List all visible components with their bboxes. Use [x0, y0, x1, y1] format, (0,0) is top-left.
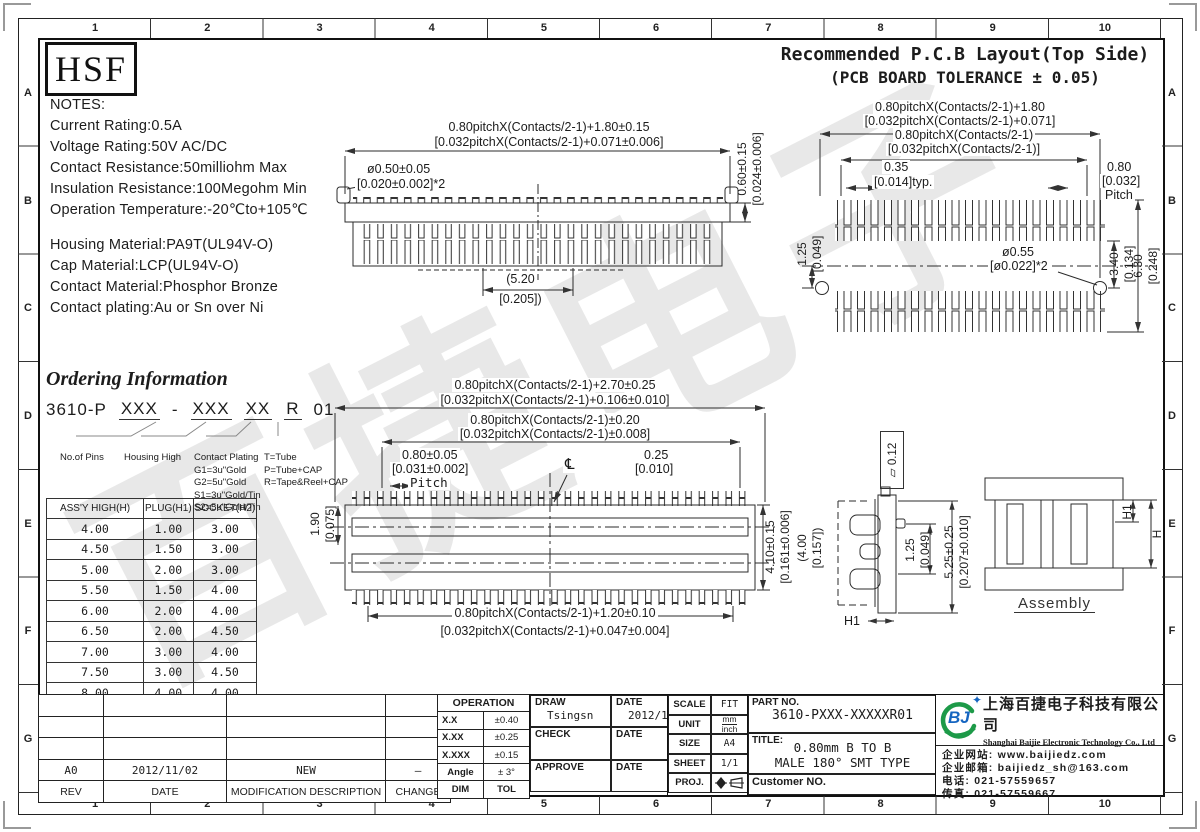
- flatness-icon: ▱: [887, 468, 899, 477]
- dim-front-width-mm: 0.80pitchX(Contacts/2-1)+1.80±0.15: [333, 120, 765, 134]
- company-name-en: Shanghai Baijie Electronic Technology Co…: [983, 737, 1161, 747]
- pcb-layout-drawing: 0.80pitchX(Contacts/2-1)+1.80 [0.032pitc…: [800, 100, 1162, 345]
- table-row: 6.502.004.50: [47, 621, 257, 642]
- dim-hole-mm: ø0.55: [1000, 245, 1036, 259]
- dim-top-pitch-in: [0.031±0.002]: [390, 462, 470, 476]
- pcb-layout-heading: Recommended P.C.B Layout(Top Side) (PCB …: [755, 44, 1175, 87]
- company-tel: 电话: 021-57559657: [942, 775, 1163, 787]
- revision-entry: A0 2012/11/02 NEW —: [39, 759, 451, 781]
- table-row: 4.501.503.00: [47, 539, 257, 560]
- assembly-dim-h: H: [1150, 519, 1164, 549]
- top-view-drawing: 0.80pitchX(Contacts/2-1)+2.70±0.25 [0.03…: [320, 378, 790, 650]
- dim-top-tail-in: [0.032pitchX(Contacts/2-1)+0.047±0.004]: [320, 624, 790, 638]
- table-row: 6.002.004.00: [47, 601, 257, 622]
- label-h1: H1: [842, 614, 862, 628]
- dim-top-pad-mm: 0.25: [642, 448, 670, 462]
- company-fax: 传真: 021-57559667: [942, 788, 1163, 800]
- dim-top-outer-in: [0.032pitchX(Contacts/2-1)+0.106±0.010]: [320, 393, 790, 407]
- dim-layout-span-mm: 0.80pitchX(Contacts/2-1): [800, 128, 1128, 142]
- company-block: BJ ✦ 上海百捷电子科技有限公司 Shanghai Baijie Electr…: [935, 694, 1164, 796]
- unit-value: mm inch: [711, 715, 748, 735]
- dim-layout-pitch-mm: 0.80: [1105, 160, 1133, 174]
- centerline-symbol: ℄: [563, 458, 577, 472]
- dim-layout-pitch-in: [0.032]: [1100, 174, 1142, 188]
- dim-layout-outer-in: [0.032pitchX(Contacts/2-1)+0.071]: [800, 114, 1120, 128]
- company-email: 企业邮箱: baijiedz_sh@163.com: [942, 762, 1163, 774]
- ordering-code: 3610-P XXX - XXX XX R 01: [46, 399, 346, 420]
- part-info-block: PART NO. 3610-PXXX-XXXXXR01 TITLE: 0.80m…: [747, 694, 938, 796]
- dim-side-ref: (4.00 [0.157]): [795, 508, 825, 588]
- grid-columns-top: 12345678910: [39, 18, 1161, 38]
- front-view-drawing: 0.80pitchX(Contacts/2-1)+1.80±0.15 [0.03…: [333, 120, 765, 312]
- grid-rows-left: ABCDEFG: [18, 39, 38, 793]
- dim-post-mm: ø0.50±0.05: [365, 162, 432, 176]
- dim-top-tail-mm: 0.80pitchX(Contacts/2-1)+1.20±0.10: [320, 606, 790, 620]
- part-number: 3610-PXXX-XXXXXR01: [749, 708, 936, 723]
- dim-side-b: 5.25±0.25 [0.207±0.010]: [942, 506, 972, 598]
- dim-layout-span-in: [0.032pitchX(Contacts/2-1)]: [800, 142, 1128, 156]
- dim-layout-pad-mm: 0.35: [882, 160, 910, 174]
- dim-side-a: 1.25 [0.049]: [903, 519, 933, 581]
- part-no-cell: PART NO. 3610-PXXX-XXXXXR01: [748, 695, 937, 733]
- table-row: 5.002.003.00: [47, 560, 257, 581]
- dim-layout-outer-mm: 0.80pitchX(Contacts/2-1)+1.80: [800, 100, 1120, 114]
- star-icon: ✦: [972, 693, 982, 707]
- hsf-logo: HSF: [45, 42, 137, 96]
- third-angle-projection-icon: [711, 773, 748, 793]
- doc-info-block: SCALE FIT UNIT mm inch SIZE A4 SHEET 1/1…: [667, 694, 750, 796]
- dim-post-in: [0.020±0.002]*2: [355, 177, 447, 191]
- dim-top-span-mm: 0.80pitchX(Contacts/2-1)±0.20: [320, 413, 790, 427]
- notes-title: NOTES:: [50, 95, 360, 116]
- ordering-leader-lines: [46, 422, 346, 450]
- table-row: 5.501.504.00: [47, 580, 257, 601]
- table-row: 7.503.004.50: [47, 662, 257, 683]
- logo-letters: BJ: [948, 708, 970, 728]
- part-title-line2: MALE 180° SMT TYPE: [749, 755, 936, 770]
- dim-hole-offset: 1.25 [0.049]: [795, 223, 825, 285]
- revision-headers: REV DATE MODIFICATION DESCRIPTION CHANGE: [39, 781, 451, 803]
- assembly-label: Assembly: [997, 595, 1112, 613]
- approve-cell: APPROVE: [530, 760, 611, 792]
- scale-value: FIT: [711, 695, 748, 715]
- title-cell: TITLE: 0.80mm B TO B MALE 180° SMT TYPE: [748, 733, 937, 774]
- sheet-value: 1/1: [711, 754, 748, 774]
- tolerance-table: OPERATION X.X±0.40 X.XX±0.25 X.XXX±0.15 …: [437, 694, 530, 799]
- drawer-name: Tsingsn: [535, 709, 610, 722]
- company-name-cn: 上海百捷电子科技有限公司: [983, 693, 1161, 735]
- dim-top-pitch-mm: 0.80±0.05: [400, 448, 460, 462]
- dim-total-height: 6.30 [0.248]: [1131, 231, 1161, 301]
- engineering-drawing-sheet: 12345678910 12345678910 ABCDEFG ABCDEFG …: [0, 0, 1200, 832]
- dim-layout-pad-in: [0.014]typ.: [872, 175, 934, 189]
- revision-table: A0 2012/11/02 NEW — REV DATE MODIFICATIO…: [38, 694, 451, 803]
- customer-cell: Customer NO.: [748, 774, 937, 795]
- dim-front-height: 0.60±0.15 [0.024±0.006]: [735, 122, 765, 216]
- dim-hole-in: [ø0.022]*2: [988, 259, 1050, 273]
- signoff-block: DRAWTsingsn DATE2012/11/02 CHECK DATE AP…: [529, 694, 670, 796]
- flatness-callout: ▱ 0.12: [880, 431, 904, 489]
- company-logo: BJ ✦: [938, 699, 980, 741]
- check-cell: CHECK: [530, 727, 611, 759]
- dim-top-pad-in: [0.010]: [633, 462, 675, 476]
- dim-top-row: 1.90 [0.075]: [308, 493, 338, 555]
- dim-top-span-in: [0.032pitchX(Contacts/2-1)±0.008]: [320, 427, 790, 441]
- side-view-drawing: ▱ 0.12 (4.00 [0.157]) 1.25 [0.049] 5.25±…: [780, 423, 980, 635]
- check-date-cell: DATE: [611, 727, 668, 759]
- dim-front-width-in: [0.032pitchX(Contacts/2-1)+0.071±0.006]: [333, 135, 765, 149]
- draw-date: 2012/11/02: [616, 709, 667, 722]
- company-website: 企业网站: www.baijiedz.com: [942, 749, 1163, 761]
- grid-rows-right: ABCDEFG: [1162, 39, 1182, 793]
- height-table: ASS'Y HIGH(H) PLUG(H1) SOCKET(H2) 4.001.…: [46, 498, 257, 704]
- ordering-title: Ordering Information: [46, 368, 346, 391]
- dim-front-center-mm: (5.20: [413, 272, 628, 286]
- dim-front-center-in: [0.205]): [413, 292, 628, 306]
- notes-block: NOTES: Current Rating:0.5A Voltage Ratin…: [50, 95, 360, 319]
- table-row: 7.003.004.00: [47, 642, 257, 663]
- dim-top-pitch-label: Pitch: [408, 476, 450, 490]
- approve-date-cell: DATE: [611, 760, 668, 792]
- table-row: 4.001.003.00: [47, 519, 257, 540]
- size-value: A4: [711, 734, 748, 754]
- ordering-label-pins: No.of Pins: [60, 452, 104, 465]
- draw-date-cell: DATE2012/11/02: [611, 695, 668, 727]
- dim-layout-pitch-label: Pitch: [1103, 188, 1135, 202]
- ordering-label-height: Housing High: [124, 452, 181, 465]
- draw-cell: DRAWTsingsn: [530, 695, 611, 727]
- assembly-dim-h1: H1: [1120, 497, 1134, 527]
- dim-top-outer-mm: 0.80pitchX(Contacts/2-1)+2.70±0.25: [320, 378, 790, 392]
- assembly-drawing: H1 H Assembly: [975, 468, 1170, 623]
